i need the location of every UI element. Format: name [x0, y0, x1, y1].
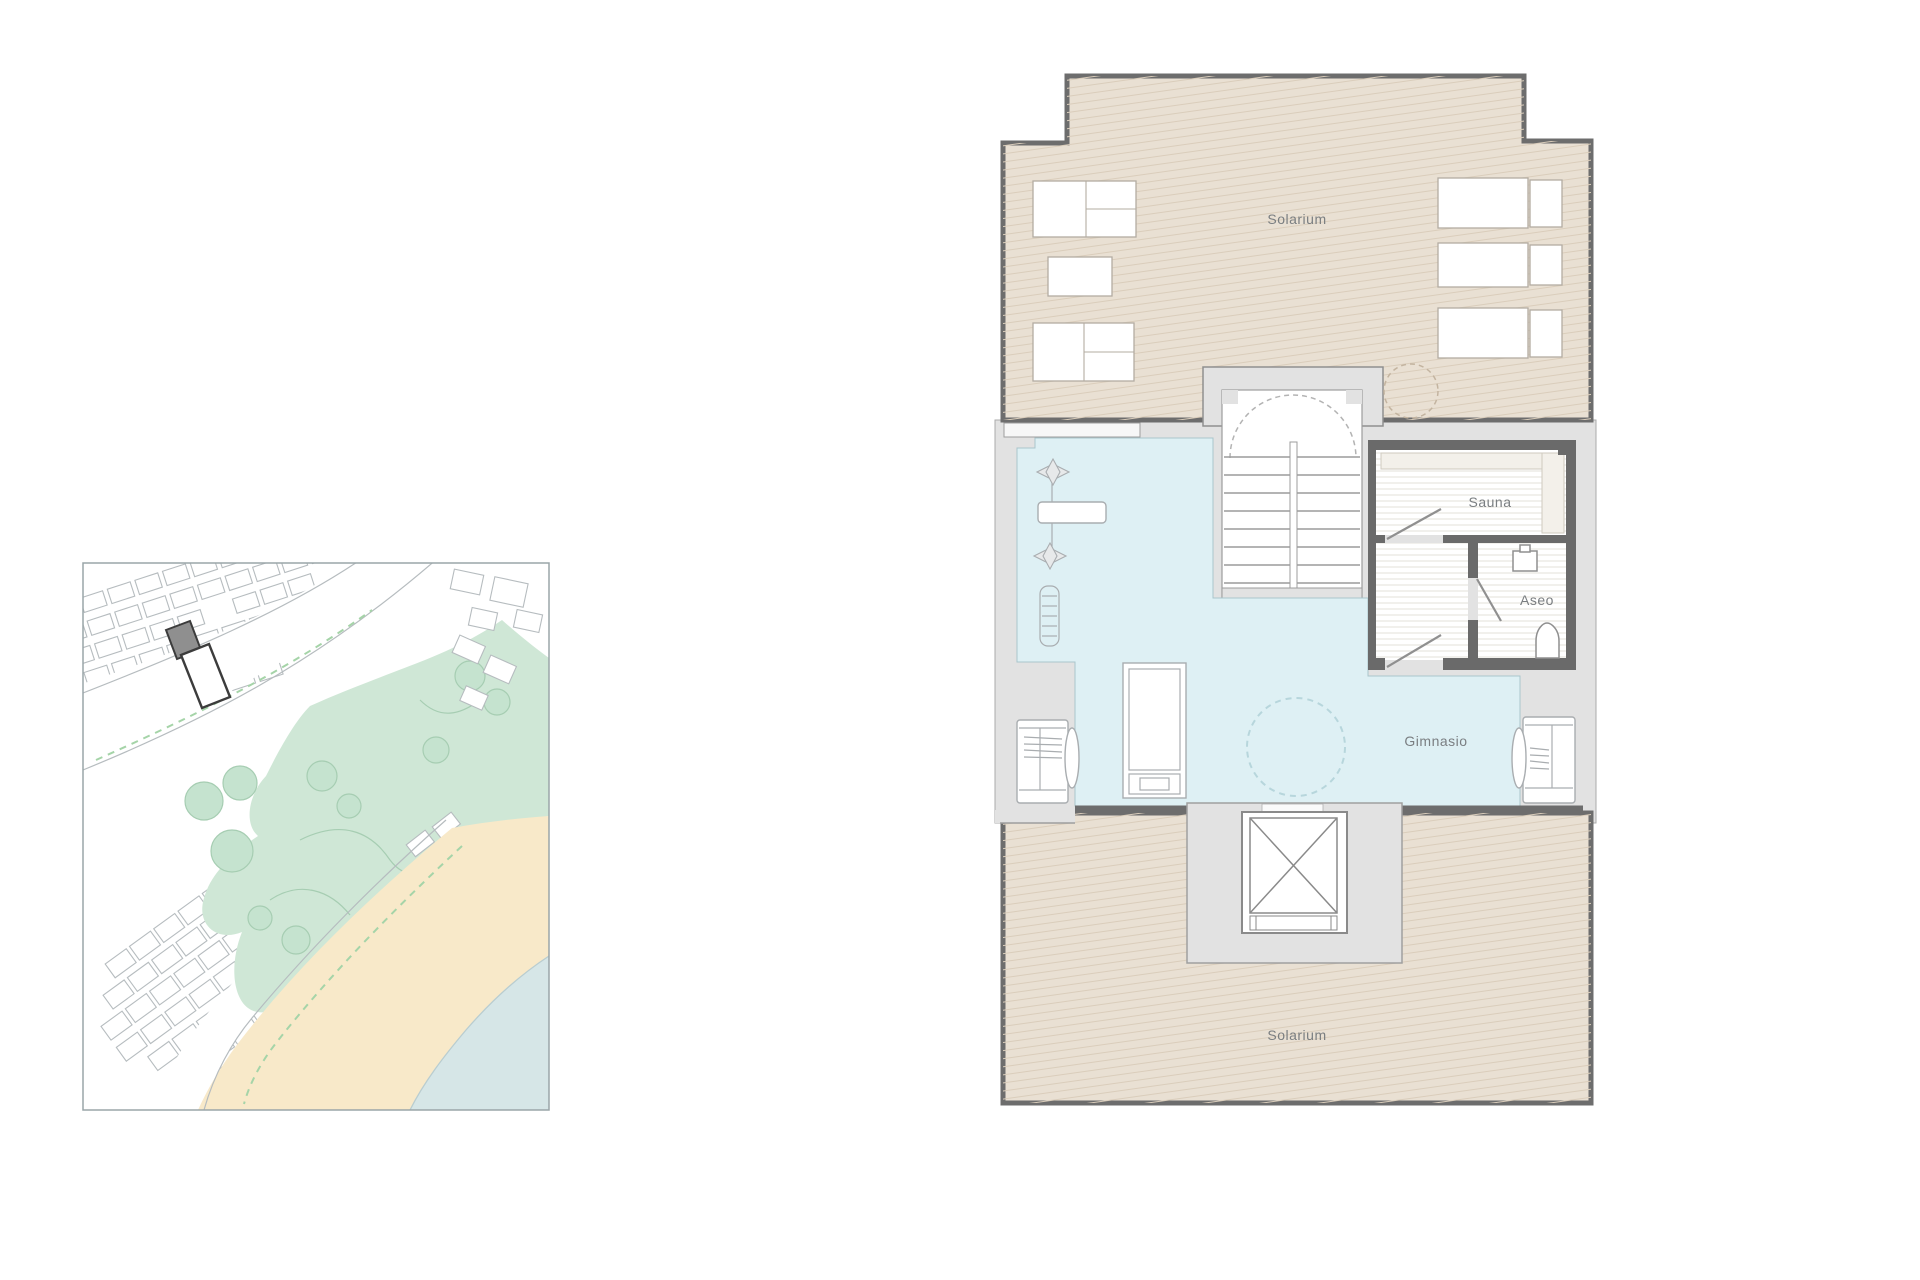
tree-icon [423, 737, 449, 763]
tree-icon [248, 906, 272, 930]
toilet-icon [1536, 623, 1559, 658]
elevator-icon [1187, 803, 1402, 963]
room-label-solarium-bottom: Solarium [1267, 1027, 1326, 1043]
room-label-aseo: Aseo [1520, 592, 1554, 608]
floor-plan: Solarium Sauna Aseo Gimnasio Solarium [995, 76, 1596, 1103]
sun-lounger [1438, 243, 1562, 287]
tree-icon [337, 794, 361, 818]
stair-divider [1290, 442, 1297, 588]
stairs [1222, 390, 1362, 600]
sauna-bench [1542, 453, 1564, 533]
plan-canvas: Solarium Sauna Aseo Gimnasio Solarium [0, 0, 1920, 1280]
tree-icon [455, 661, 485, 691]
parapet-wall [1004, 423, 1140, 437]
wellness-block [1368, 440, 1576, 670]
room-label-gimnasio: Gimnasio [1404, 733, 1467, 749]
tree-icon [185, 782, 223, 820]
sun-lounger [1048, 257, 1112, 296]
site-map [52, 519, 549, 1124]
treadmill-icon [1123, 663, 1186, 798]
room-label-sauna: Sauna [1469, 494, 1512, 510]
tree-icon [223, 766, 257, 800]
room-label-solarium-top: Solarium [1267, 211, 1326, 227]
sun-lounger [1438, 178, 1562, 228]
page: Solarium Sauna Aseo Gimnasio Solarium [0, 0, 1920, 1280]
tree-icon [282, 926, 310, 954]
tree-icon [307, 761, 337, 791]
sauna-bench [1381, 453, 1559, 469]
tree-icon [211, 830, 253, 872]
sun-lounger [1438, 308, 1562, 358]
sun-lounger [1033, 323, 1134, 381]
sun-lounger [1033, 181, 1136, 237]
tree-icon [484, 689, 510, 715]
wall-patch [995, 810, 1075, 823]
